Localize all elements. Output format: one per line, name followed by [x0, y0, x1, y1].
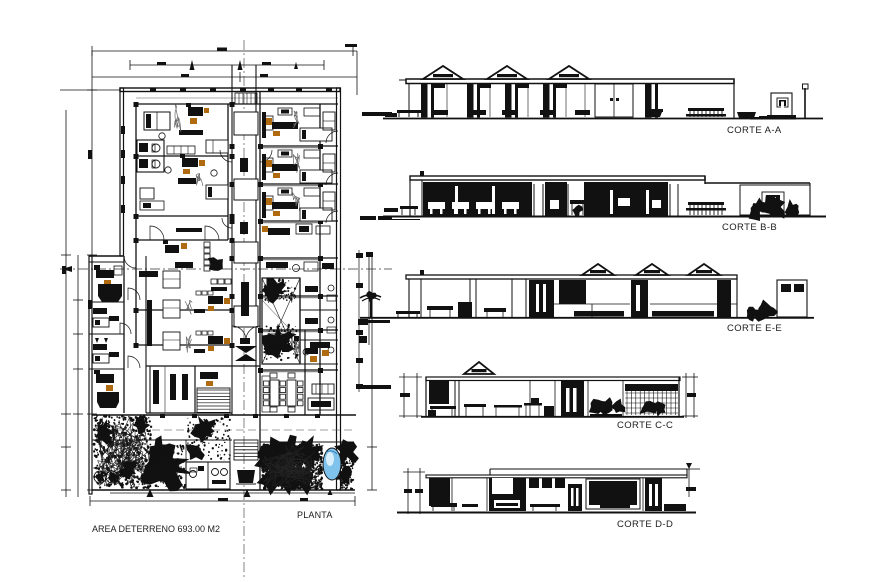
svg-text:AREA DETERRENO 693.00 M2: AREA DETERRENO 693.00 M2 — [92, 524, 220, 534]
svg-text:PLANTA: PLANTA — [297, 510, 333, 520]
svg-text:CORTE B-B: CORTE B-B — [722, 222, 777, 233]
svg-text:CORTE E-E: CORTE E-E — [727, 323, 782, 334]
svg-text:CORTE D-D: CORTE D-D — [617, 519, 673, 530]
svg-text:CORTE A-A: CORTE A-A — [727, 125, 782, 136]
svg-text:CORTE C-C: CORTE C-C — [617, 420, 673, 431]
